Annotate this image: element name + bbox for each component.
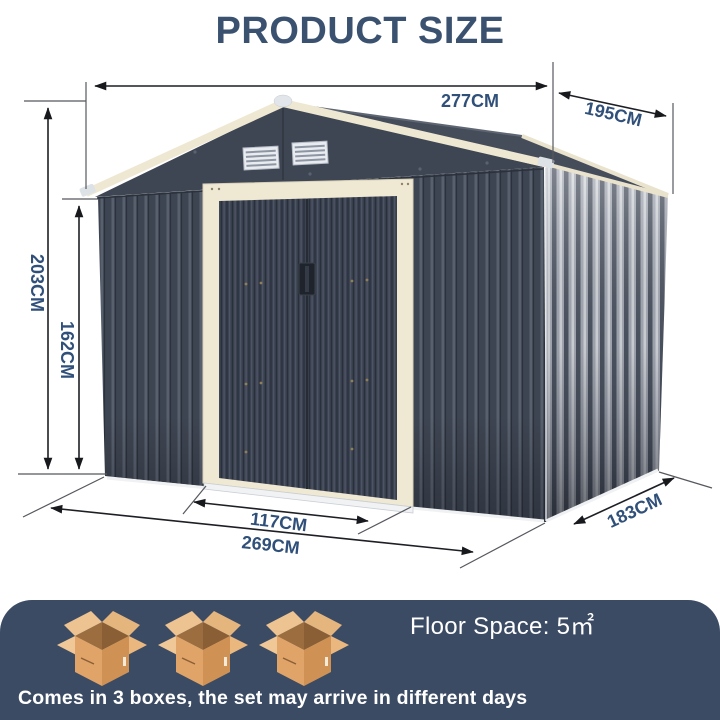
shed-size-diagram: 277CM 195CM 203CM 162CM [0, 0, 720, 600]
shipping-boxes [56, 602, 350, 692]
door [203, 179, 413, 513]
dim-label-roof-width: 277CM [441, 91, 499, 111]
dim-label-base-width: 269CM [241, 532, 301, 558]
floor-space-label: Floor Space: 5㎡ [410, 606, 595, 641]
product-size-page: PRODUCT SIZE [0, 0, 720, 720]
side-wall-shading [546, 166, 668, 522]
shipping-note: Comes in 3 boxes, the set may arrive in … [18, 687, 527, 710]
ridge-cap [274, 95, 292, 107]
door-handle [299, 263, 315, 295]
dim-label-wall-height: 162CM [57, 321, 77, 379]
vent-left-icon [243, 146, 279, 170]
dim-overall-height: 203CM [18, 101, 107, 474]
dim-label-roof-depth: 195CM [583, 98, 644, 131]
box-icon [56, 602, 148, 692]
dim-wall-height: 162CM [57, 199, 98, 469]
dim-label-overall-height: 203CM [27, 254, 47, 312]
box-icon [157, 602, 249, 692]
box-icon [258, 602, 350, 692]
vent-right-icon [292, 141, 328, 165]
shed-illustration [79, 95, 668, 522]
